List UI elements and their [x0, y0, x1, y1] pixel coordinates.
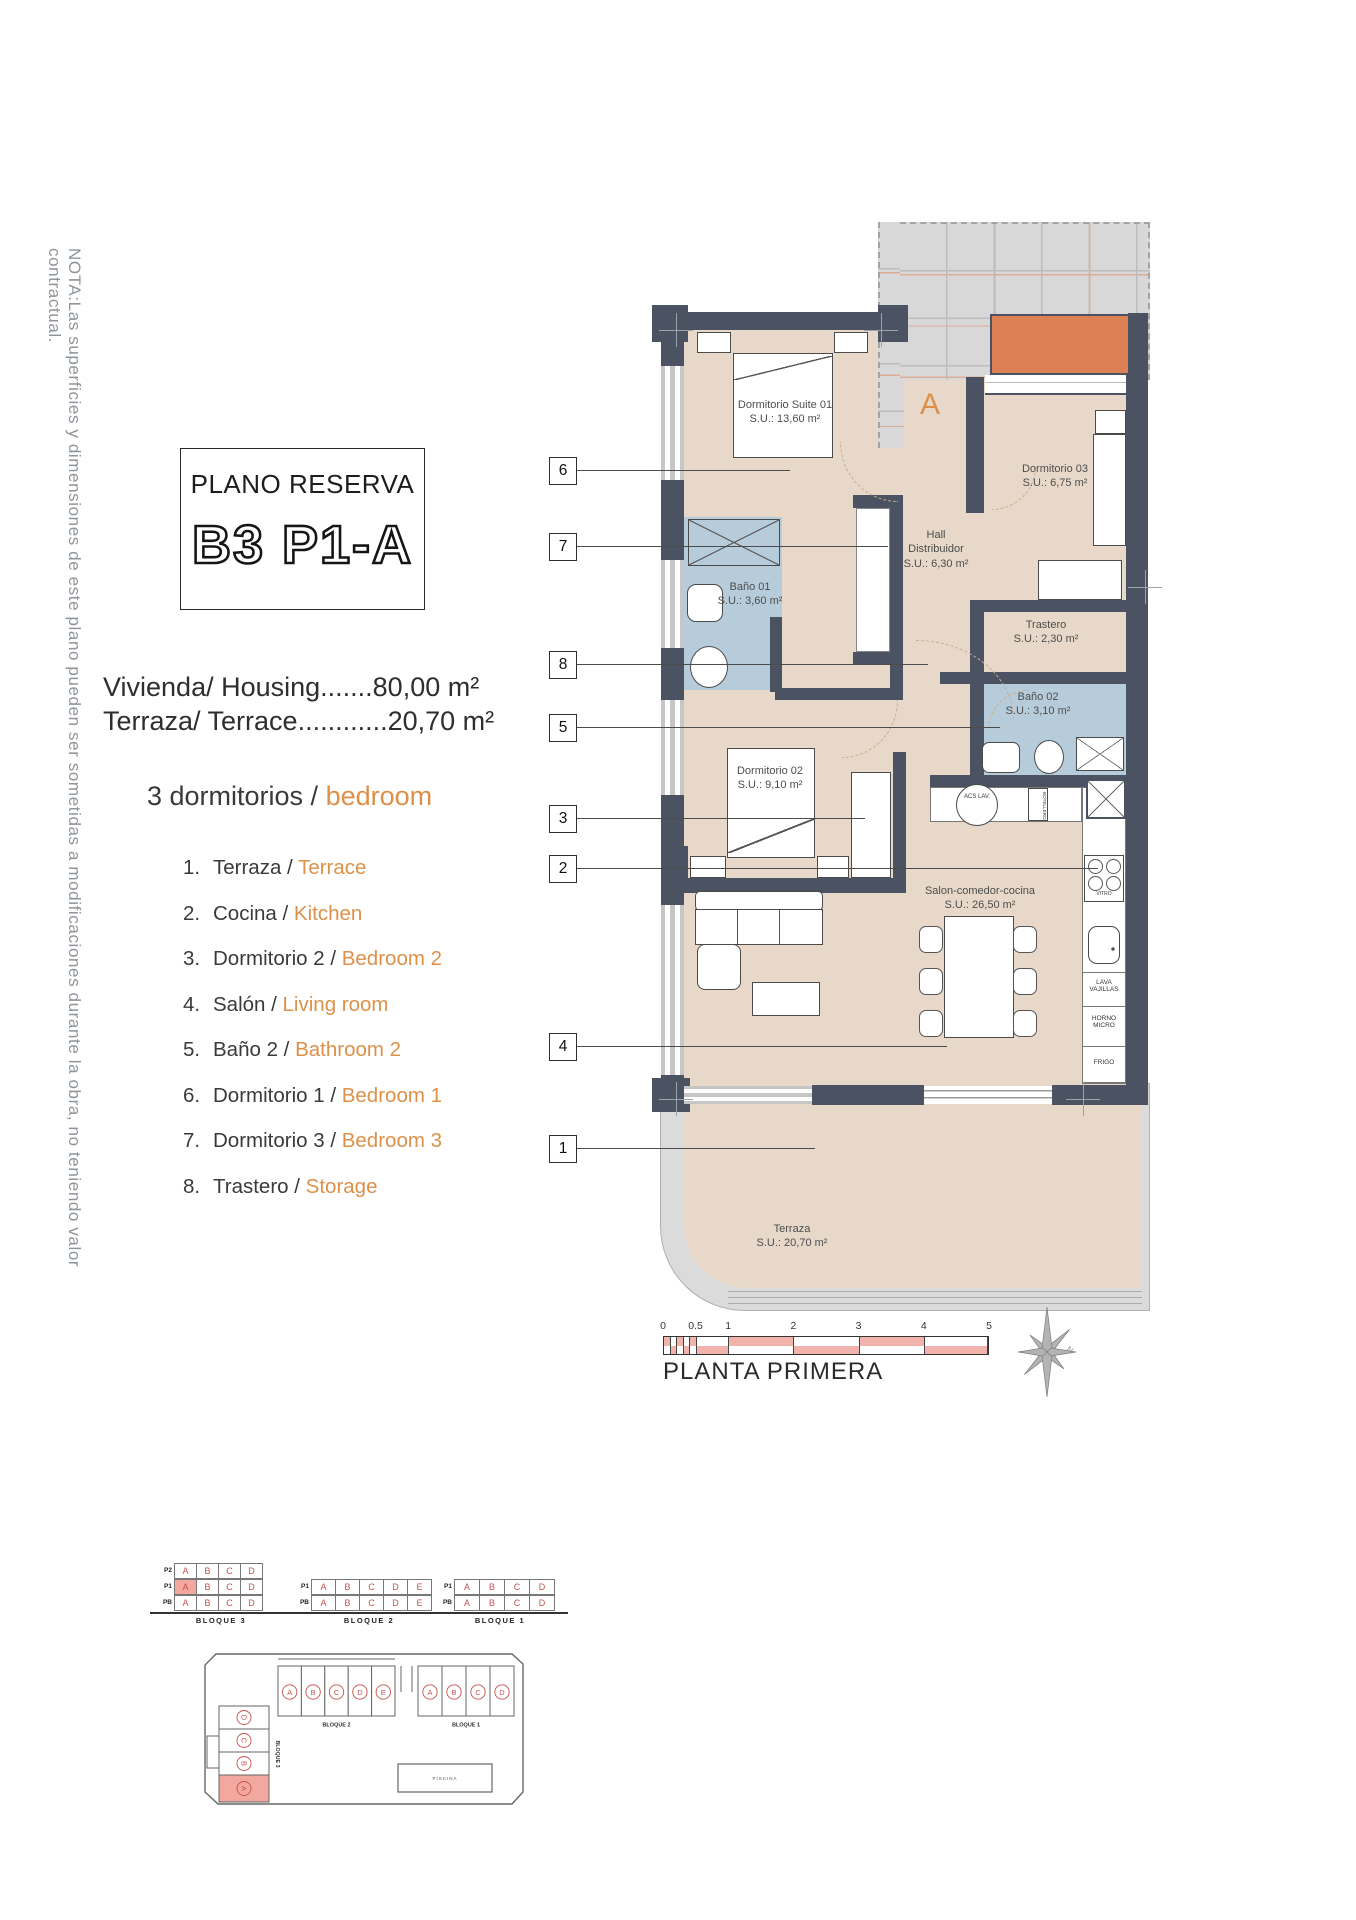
site-unit-letter: E: [381, 1688, 386, 1697]
shower: [688, 519, 780, 566]
botellero-box: BOTELLERO: [1028, 788, 1048, 821]
room-label-dorm03: Dormitorio 03S.U.: 6,75 m²: [995, 462, 1115, 491]
nightstand: [834, 332, 868, 353]
callout-5: 5: [549, 714, 577, 742]
site-core: [207, 1736, 219, 1768]
chair: [919, 968, 943, 995]
terrace-area-line: Terraza/ Terrace............20,70 m²: [103, 706, 494, 737]
table-baseline: [150, 1612, 292, 1614]
leader-line: [575, 727, 1000, 728]
wall-segment: [1126, 374, 1148, 1085]
legend-item: 6.Dormitorio 1 / Bedroom 1: [183, 1084, 442, 1130]
dorm03-window-sill: [985, 375, 1148, 395]
site-unit-letter: A: [427, 1688, 432, 1697]
wall-segment: [775, 688, 903, 700]
bedrooms-en: bedroom: [326, 781, 433, 811]
burner: [1106, 859, 1121, 874]
site-unit-letter: D: [240, 1715, 249, 1721]
legend-item: 7.Dormitorio 3 / Bedroom 3: [183, 1129, 442, 1175]
room-label-salon: Salon-comedor-cocinaS.U.: 26,50 m²: [905, 884, 1055, 913]
unit-letter: A: [908, 388, 952, 422]
table-baseline: [432, 1612, 568, 1614]
block2-row-pb: PB ABCDE: [291, 1595, 432, 1611]
block1-table-label: BLOQUE 1: [432, 1616, 568, 1625]
room-label-dorm02: Dormitorio 02S.U.: 9,10 m²: [722, 764, 818, 793]
bedrooms-es: 3 dormitorios /: [147, 781, 318, 811]
floor-caption: PLANTA PRIMERA: [663, 1358, 883, 1386]
scale-tick: 1: [725, 1320, 731, 1332]
wall-segment: [966, 377, 984, 513]
leader-line: [575, 470, 790, 471]
legend-item: 8.Trastero / Storage: [183, 1175, 442, 1221]
leader-line: [575, 868, 1098, 869]
survey-cross: [659, 1082, 693, 1116]
highlighted-unit-cell: A: [174, 1579, 197, 1595]
dining-table: [944, 916, 1014, 1038]
wall-segment: [893, 752, 906, 893]
botellero-label: BOTELLERO: [1029, 790, 1047, 821]
legend-item: 1.Terraza / Terrace: [183, 856, 442, 902]
acs-lav-label: ACS LAV.: [956, 794, 998, 801]
washer-heater-circle: [956, 784, 998, 826]
room-label-terraza: TerrazaS.U.: 20,70 m²: [740, 1222, 844, 1251]
site-block3-label: BLOQUE 3: [274, 1740, 280, 1767]
fridge-label: FRIGO: [1082, 1046, 1126, 1084]
chair: [1013, 926, 1037, 953]
site-unit-letter: B: [451, 1688, 456, 1697]
bedrooms-line: 3 dormitorios / bedroom: [147, 781, 432, 812]
bed-fold-line: [734, 356, 832, 380]
chair: [919, 1010, 943, 1037]
sofa-back: [695, 891, 823, 911]
window: [684, 1086, 812, 1104]
block3-row-pb: PB ABCD: [152, 1595, 263, 1611]
site-block1-label: BLOQUE 1: [452, 1723, 480, 1729]
dishwasher-label: LAVA VAJILLAS: [1082, 972, 1126, 994]
desk: [1038, 560, 1122, 600]
sliding-door: [924, 1086, 1052, 1104]
oven-micro-label: HORNO MICRO: [1082, 1006, 1126, 1030]
chair: [1013, 1010, 1037, 1037]
wall-segment: [984, 600, 1148, 612]
shower: [1076, 737, 1124, 771]
survey-cross: [1128, 570, 1162, 604]
scale-tick: 5: [986, 1320, 992, 1332]
block1-row-pb: PB ABCD: [434, 1595, 555, 1611]
survey-cross: [1066, 1082, 1100, 1116]
callout-7: 7: [549, 533, 577, 561]
legend-item: 4.Salón / Living room: [183, 993, 442, 1039]
block2-table-label: BLOQUE 2: [289, 1616, 449, 1625]
planter-box: [990, 314, 1130, 375]
legend-item: 3.Dormitorio 2 / Bedroom 2: [183, 947, 442, 993]
toilet: [690, 646, 728, 688]
duct-box: [1086, 779, 1126, 819]
site-unit-letter: A: [240, 1786, 249, 1791]
room-label-trastero: TrasteroS.U.: 2,30 m²: [990, 618, 1102, 647]
site-block2-label: BLOQUE 2: [322, 1723, 350, 1729]
survey-cross: [659, 313, 693, 347]
scale-bar-row: [664, 1346, 988, 1355]
burner: [1088, 859, 1103, 874]
site-unit-letter: C: [334, 1688, 340, 1697]
leader-line: [575, 546, 888, 547]
wall-segment: [812, 1085, 924, 1105]
site-piscina-label: PISCINA: [432, 1776, 457, 1781]
window: [661, 905, 684, 1075]
leader-line: [575, 1046, 947, 1047]
scale-bar-row: [664, 1337, 988, 1346]
nightstand: [690, 856, 726, 878]
nightstand: [697, 332, 731, 353]
site-unit-letter: C: [475, 1688, 481, 1697]
block1-row-p1: P1 ABCD: [434, 1579, 555, 1595]
kitchen-sink: [1088, 926, 1120, 964]
margin-note: NOTA:Las superficies y dimensiones de es…: [44, 248, 84, 1358]
bed-fold-line: [728, 819, 814, 853]
site-unit-letter: B: [311, 1688, 316, 1697]
leader-line: [575, 664, 928, 665]
nightstand: [817, 856, 849, 878]
kitchen-top-counter: [930, 787, 1082, 822]
scale-tick: 4: [921, 1320, 927, 1332]
block3-row-p2: P2 ABCD: [152, 1563, 263, 1579]
wall-segment: [770, 617, 782, 692]
site-unit-letter: C: [240, 1738, 249, 1744]
callout-1: 1: [549, 1135, 577, 1163]
block3-table-label: BLOQUE 3: [150, 1616, 292, 1625]
vitro-label: VITRO: [1085, 892, 1123, 898]
plan-kicker: PLANO RESERVA: [181, 469, 424, 500]
chair: [919, 926, 943, 953]
leader-line: [575, 818, 865, 819]
callout-8: 8: [549, 651, 577, 679]
housing-area-line: Vivienda/ Housing.......80,00 m²: [103, 672, 479, 703]
unit-code: B3 P1-A: [181, 514, 424, 576]
wall-pillar: [664, 846, 688, 880]
wardrobe: [851, 772, 891, 878]
scale-tick: 3: [856, 1320, 862, 1332]
window: [661, 560, 684, 648]
callout-3: 3: [549, 805, 577, 833]
room-label-bano01: Baño 01S.U.: 3,60 m²: [706, 580, 794, 609]
site-plan: D C B A BLOQUE 3 A B C D E BLOQUE 2: [192, 1646, 537, 1822]
scale-tick: 0: [660, 1320, 666, 1332]
room-label-hall: Hall DistribuidorS.U.: 6,30 m²: [898, 528, 974, 571]
callout-2: 2: [549, 855, 577, 883]
burner: [1106, 876, 1121, 891]
survey-cross: [864, 313, 898, 347]
window: [661, 366, 684, 480]
pillow: [1095, 410, 1126, 434]
legend-item: 2.Cocina / Kitchen: [183, 902, 442, 948]
scale-tick: 0.5: [688, 1320, 703, 1332]
scale-bar: [663, 1336, 989, 1355]
hall-closet: [856, 508, 890, 652]
sink: [982, 742, 1020, 773]
floorplan-page: NOTA:Las superficies y dimensiones de es…: [0, 0, 1356, 1920]
chair: [1013, 968, 1037, 995]
wall-segment: [1128, 313, 1148, 375]
site-unit-letter: D: [499, 1688, 505, 1697]
burner: [1088, 876, 1103, 891]
leader-line: [575, 1148, 815, 1149]
title-box: PLANO RESERVA B3 P1-A: [180, 448, 425, 610]
site-unit-letter: A: [287, 1688, 292, 1697]
block3-row-p1: P1 ABCD: [152, 1579, 263, 1595]
coffee-table: [752, 982, 820, 1016]
room-label-suite: Dormitorio Suite 01S.U.: 13,60 m²: [700, 398, 870, 427]
callout-4: 4: [549, 1033, 577, 1061]
callout-6: 6: [549, 457, 577, 485]
sofa-seats: [695, 909, 823, 945]
site-unit-letter: B: [240, 1761, 249, 1766]
room-label-bano02: Baño 02S.U.: 3,10 m²: [990, 690, 1086, 719]
compass-rose: N: [1016, 1306, 1078, 1398]
room-legend: 1.Terraza / Terrace 2.Cocina / Kitchen 3…: [183, 856, 442, 1220]
terrace-edge-lines: [728, 1291, 1142, 1304]
block2-row-p1: P1 ABCDE: [291, 1579, 432, 1595]
toilet: [1034, 740, 1064, 774]
table-baseline: [289, 1612, 449, 1614]
legend-item: 5.Baño 2 / Bathroom 2: [183, 1038, 442, 1084]
window: [661, 700, 684, 795]
sofa-chaise: [697, 944, 741, 990]
site-unit-letter: D: [357, 1688, 363, 1697]
hob: VITRO: [1084, 855, 1124, 902]
scale-tick: 2: [790, 1320, 796, 1332]
